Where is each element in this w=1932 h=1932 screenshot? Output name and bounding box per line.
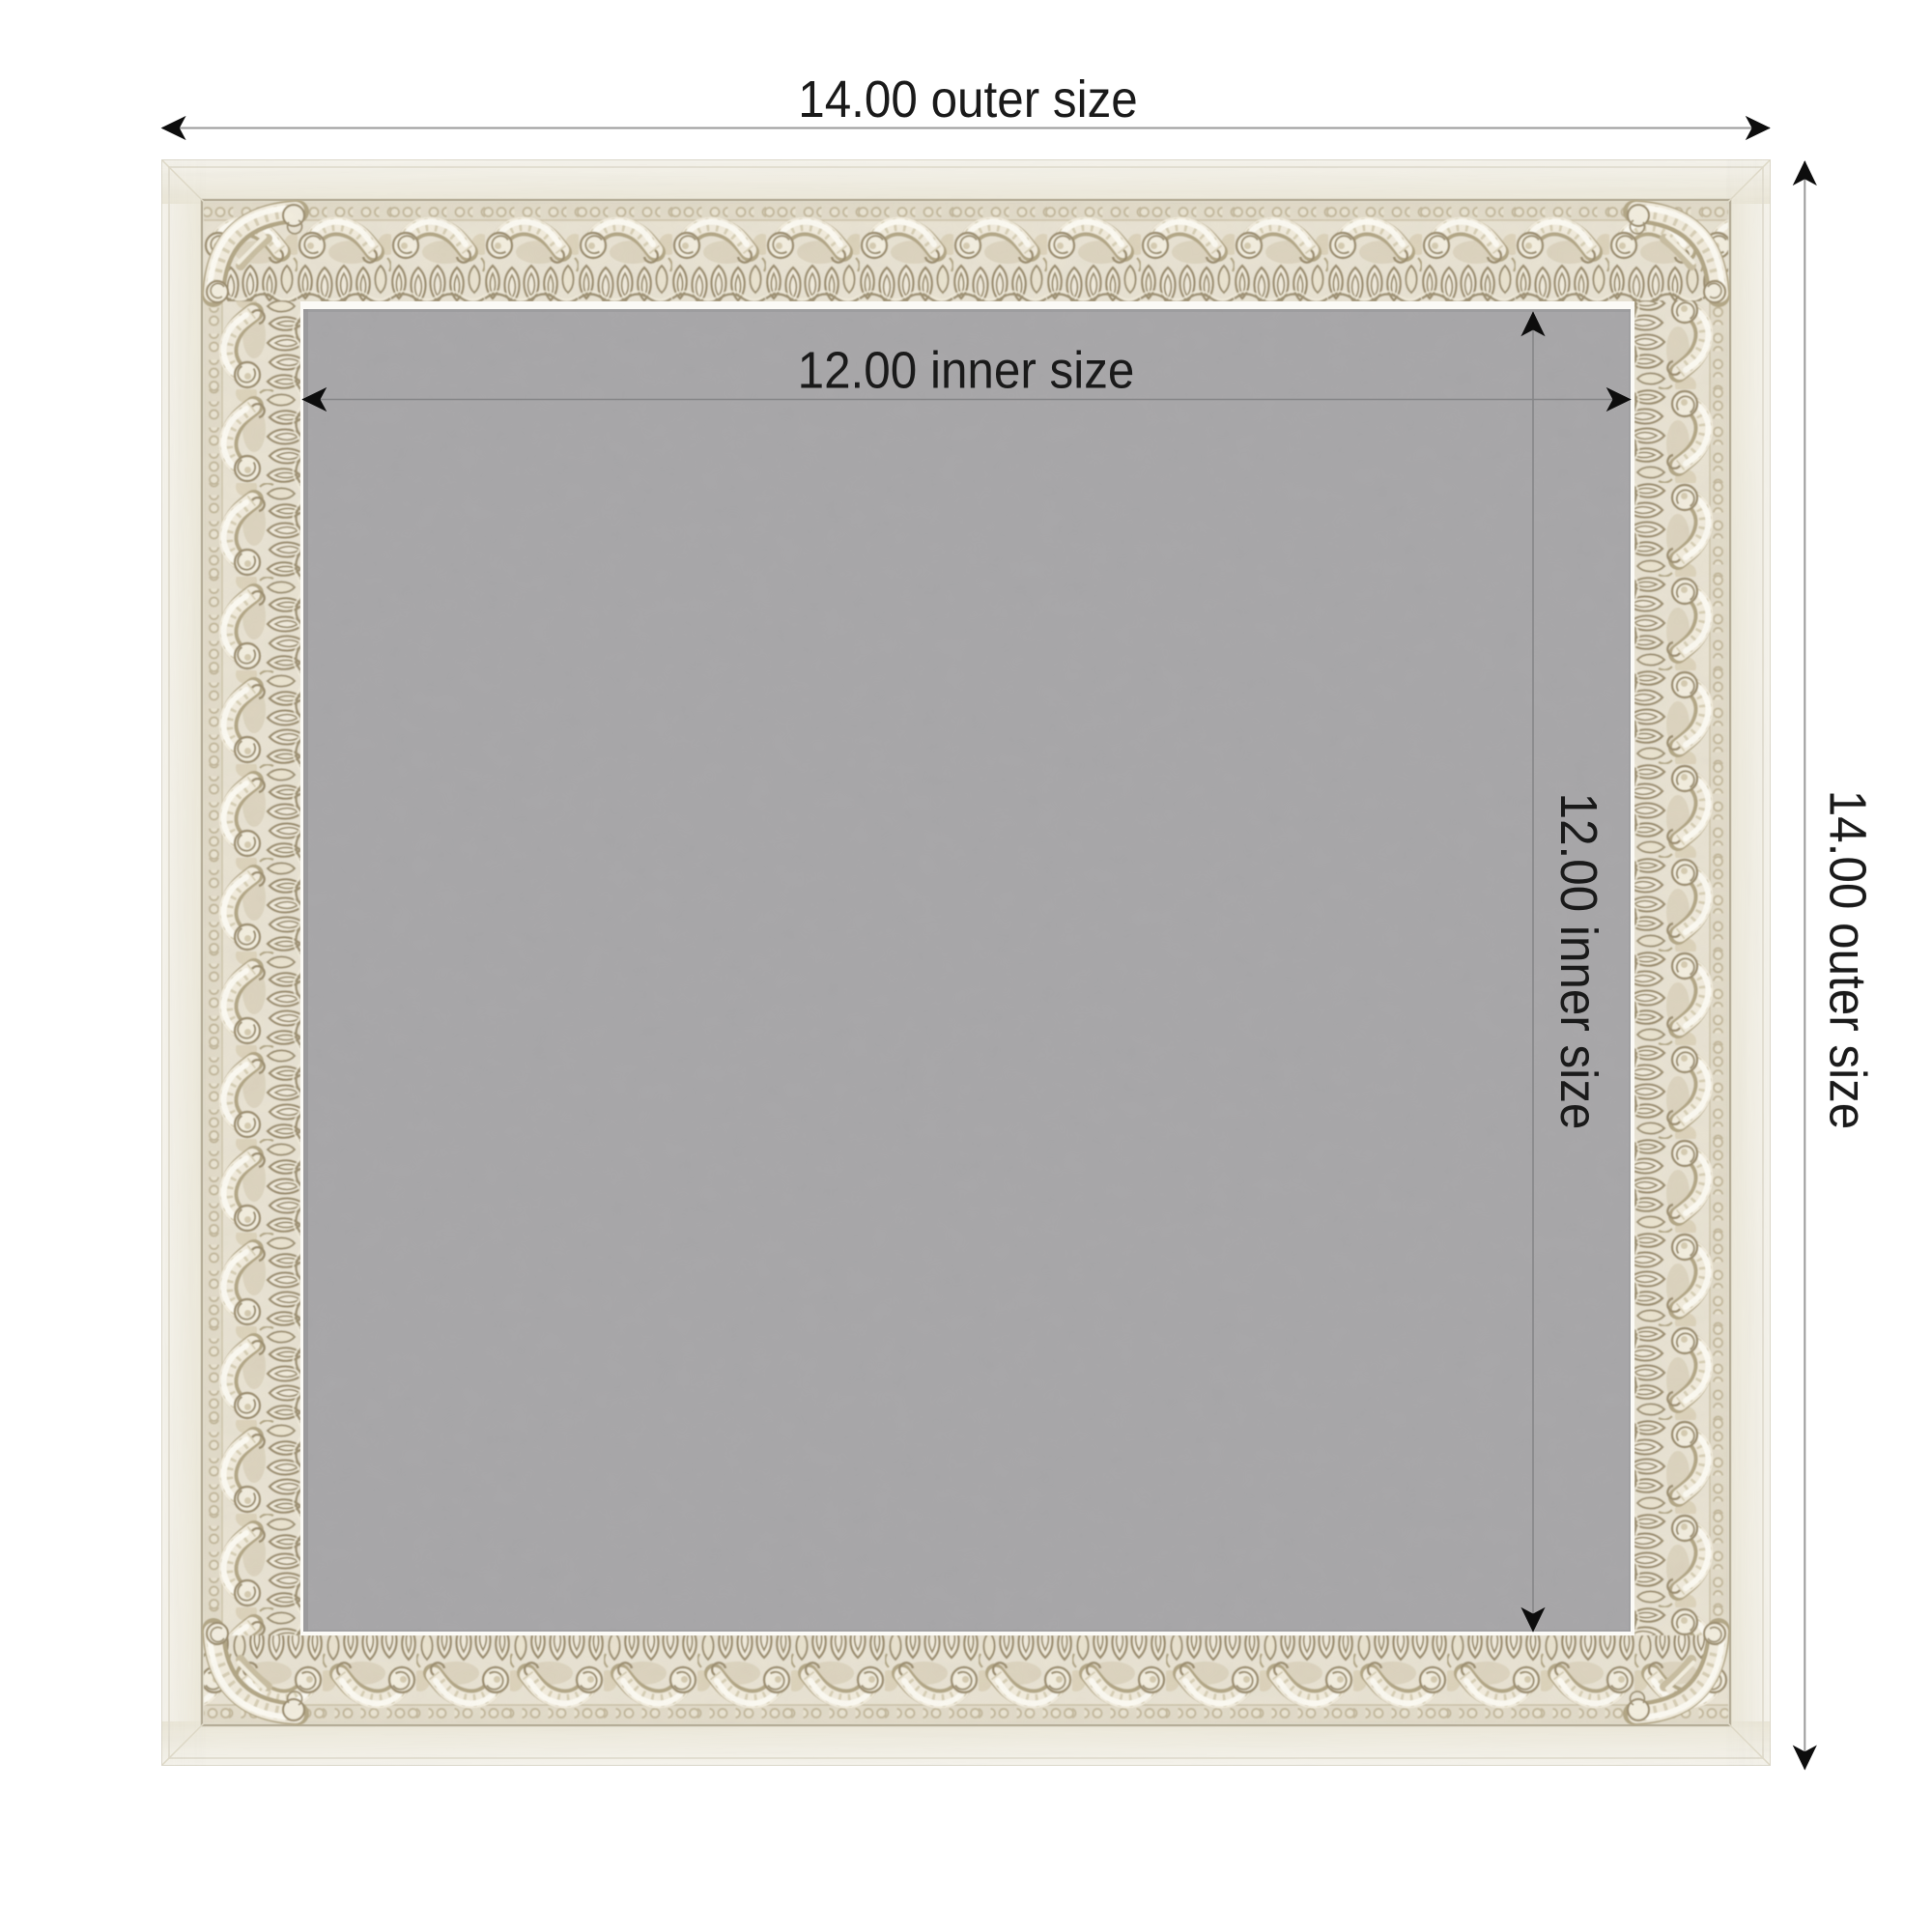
svg-text:14.00 outer size: 14.00 outer size bbox=[798, 70, 1138, 128]
svg-text:14.00 outer size: 14.00 outer size bbox=[1819, 790, 1878, 1130]
svg-text:12.00 inner size: 12.00 inner size bbox=[1550, 793, 1609, 1130]
svg-text:12.00 inner size: 12.00 inner size bbox=[798, 340, 1135, 399]
